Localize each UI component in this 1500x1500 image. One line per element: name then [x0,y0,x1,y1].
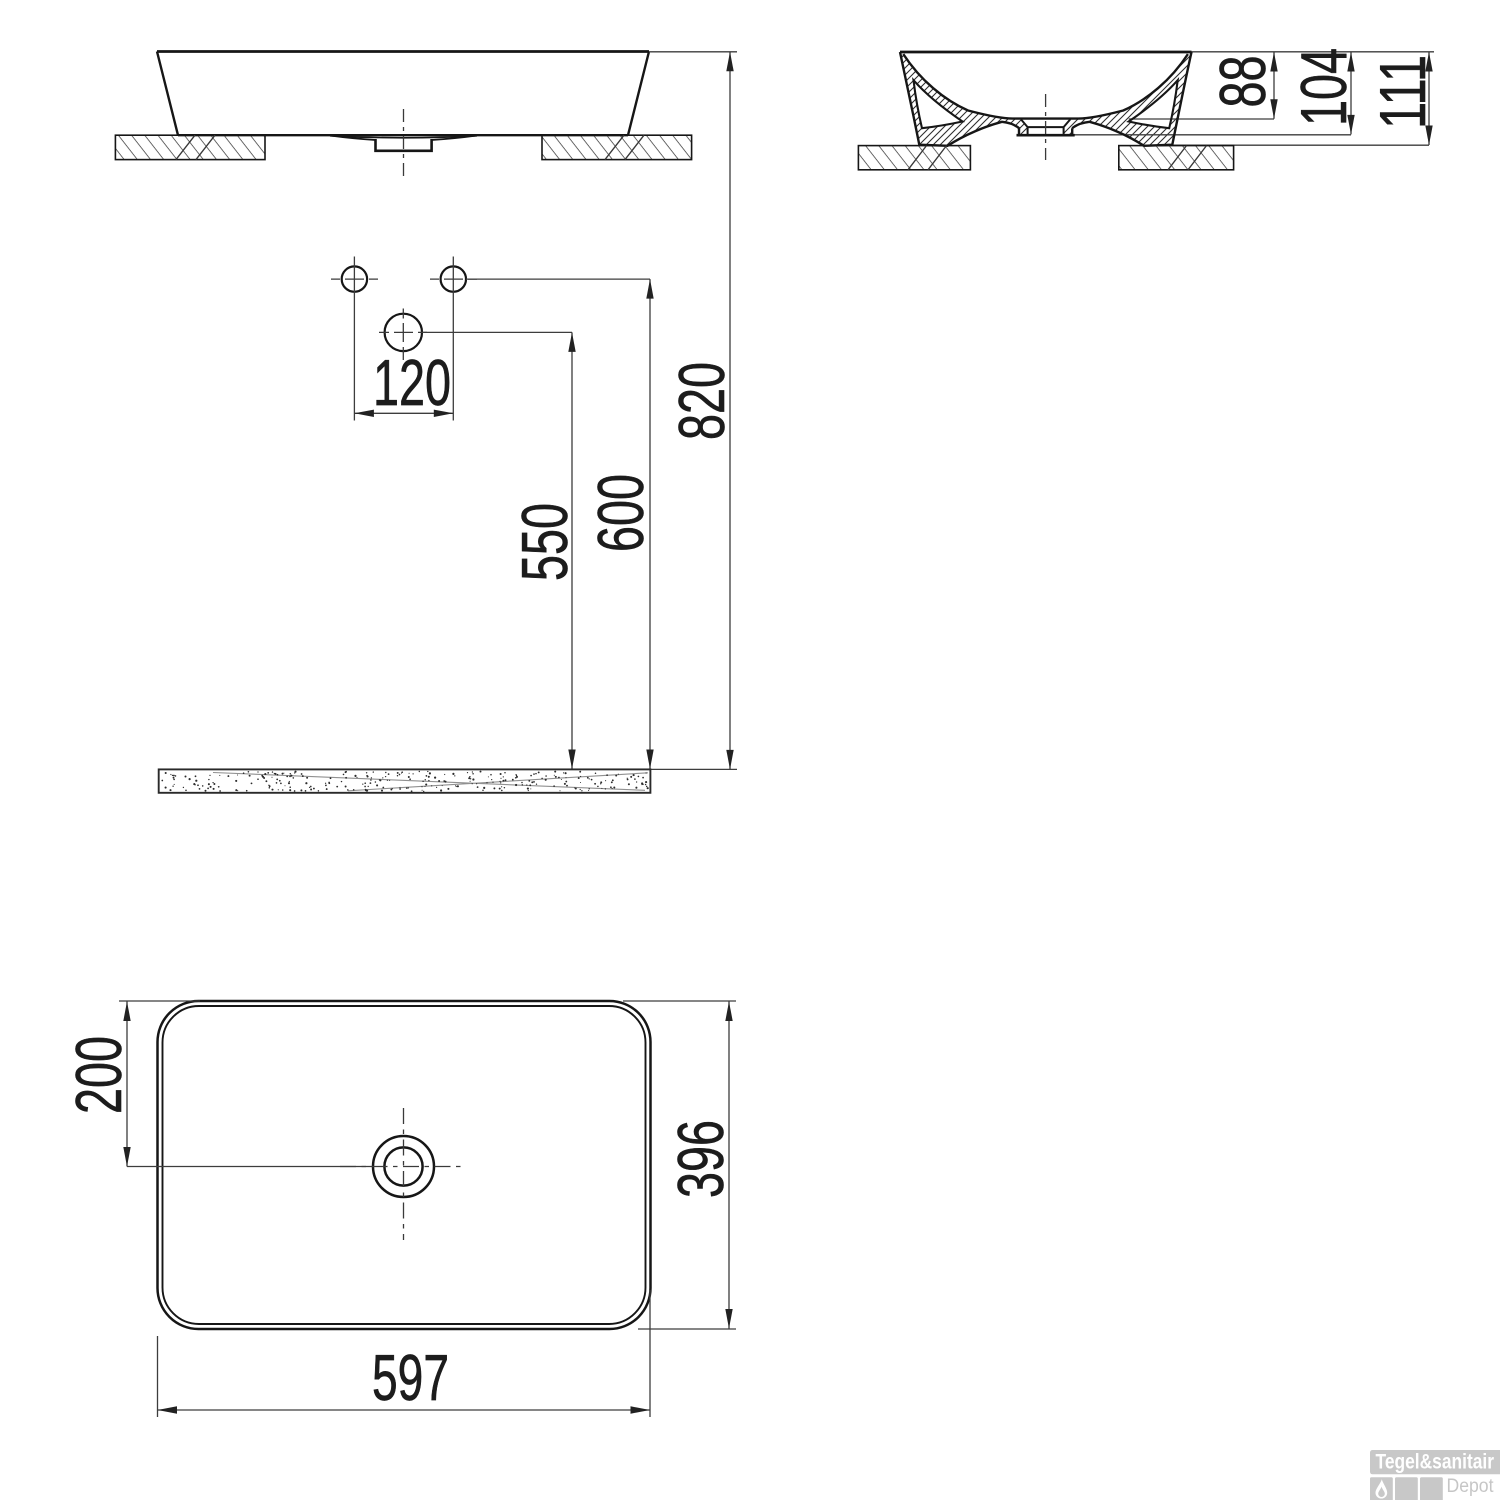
svg-text:Tegel&sanitair: Tegel&sanitair [1376,1450,1495,1474]
svg-text:104: 104 [1287,48,1360,126]
svg-text:396: 396 [664,1120,737,1198]
svg-text:200: 200 [62,1036,135,1114]
svg-text:550: 550 [508,503,581,581]
svg-text:120: 120 [373,346,451,419]
svg-text:820: 820 [665,362,738,440]
svg-text:Depot: Depot [1447,1475,1495,1497]
svg-text:600: 600 [584,474,657,552]
svg-text:88: 88 [1206,56,1279,108]
svg-text:597: 597 [372,1341,449,1414]
svg-text:111: 111 [1366,55,1439,129]
